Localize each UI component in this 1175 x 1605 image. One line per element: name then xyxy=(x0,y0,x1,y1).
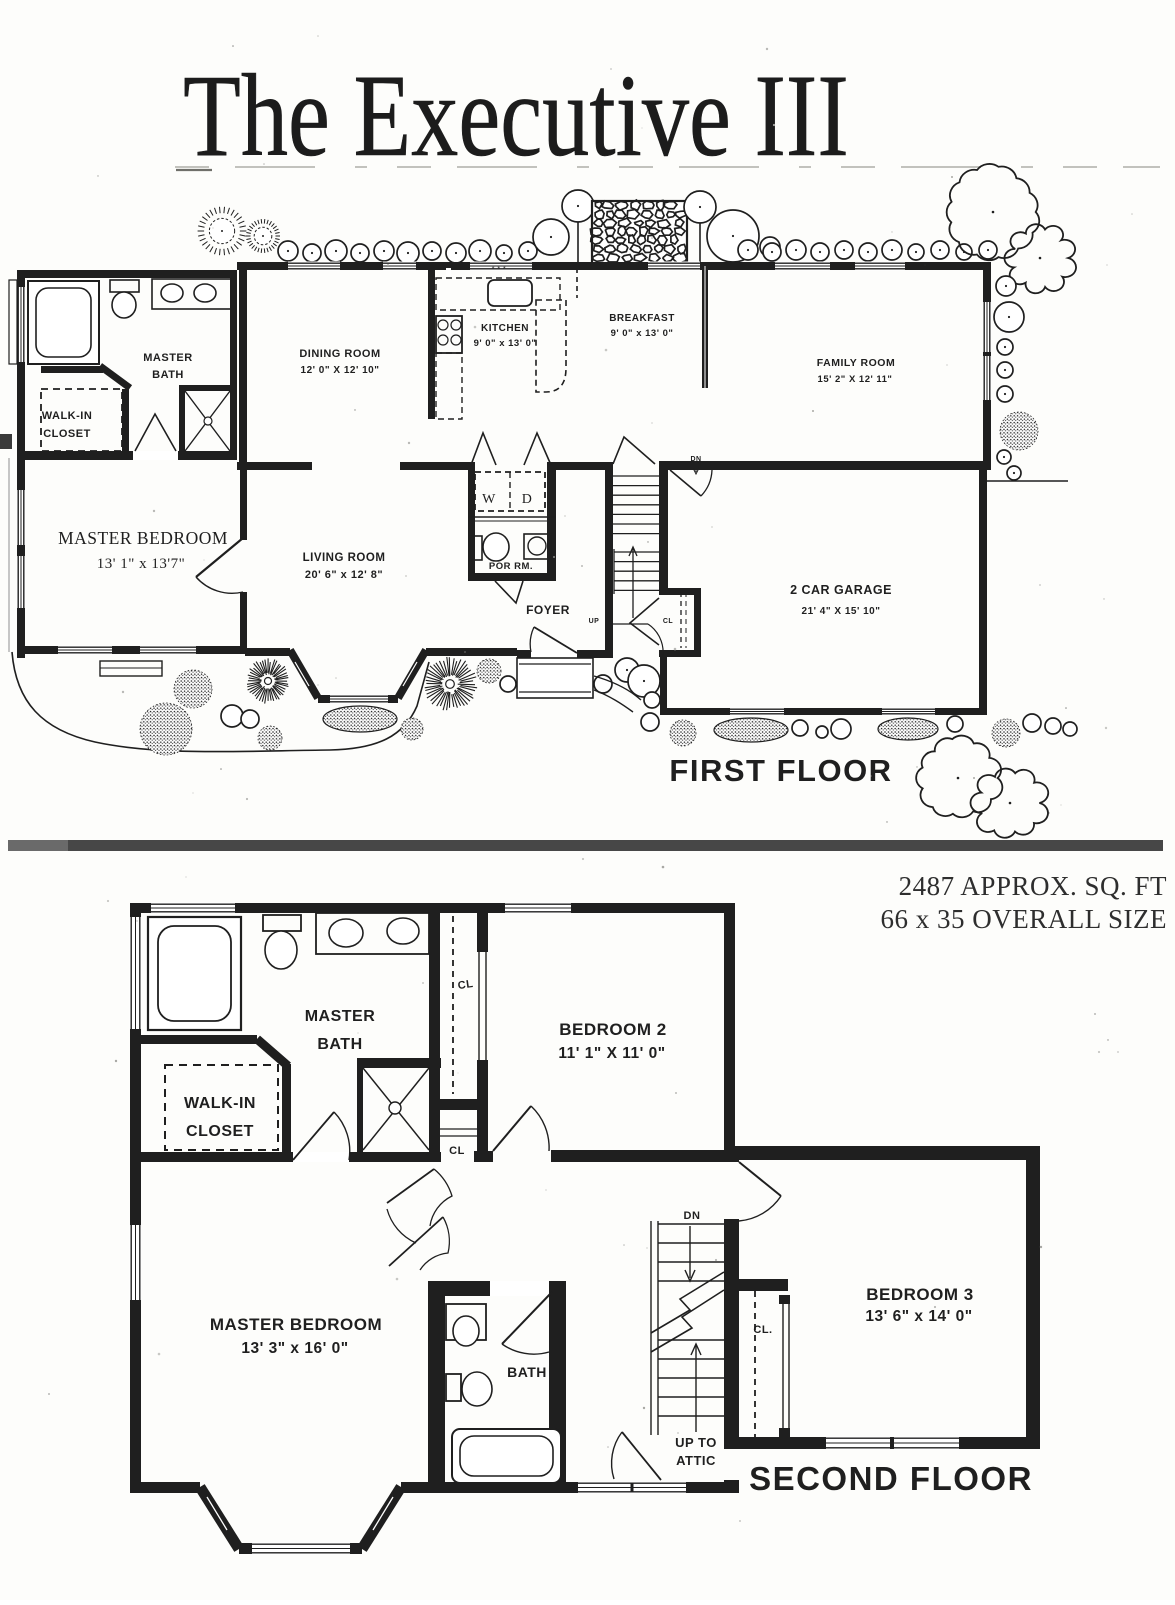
svg-text:BATH: BATH xyxy=(152,369,184,381)
svg-text:DN: DN xyxy=(684,1210,701,1222)
svg-text:WALK-IN: WALK-IN xyxy=(184,1095,256,1112)
svg-text:9' 0" x 13' 0": 9' 0" x 13' 0" xyxy=(474,338,537,349)
svg-text:MASTER BEDROOM: MASTER BEDROOM xyxy=(58,528,228,548)
svg-text:FIRST FLOOR: FIRST FLOOR xyxy=(669,753,892,788)
svg-text:BREAKFAST: BREAKFAST xyxy=(609,313,675,324)
svg-text:15' 2" X 12' 11": 15' 2" X 12' 11" xyxy=(818,374,893,385)
svg-text:CL.: CL. xyxy=(753,1324,772,1336)
svg-text:MASTER: MASTER xyxy=(305,1008,376,1025)
svg-text:D: D xyxy=(522,492,533,507)
svg-text:ATTIC: ATTIC xyxy=(676,1453,716,1468)
svg-text:20' 6" x 12' 8": 20' 6" x 12' 8" xyxy=(305,569,383,581)
svg-text:CLOSET: CLOSET xyxy=(43,428,91,440)
svg-text:POR RM.: POR RM. xyxy=(489,561,533,572)
svg-text:FOYER: FOYER xyxy=(526,603,570,617)
svg-text:13' 6" x 14' 0": 13' 6" x 14' 0" xyxy=(865,1308,972,1325)
svg-text:* * *: * * * xyxy=(492,266,507,273)
svg-text:BATH: BATH xyxy=(507,1364,547,1380)
svg-text:UP TO: UP TO xyxy=(675,1435,717,1450)
svg-text:13' 1" x 13'7": 13' 1" x 13'7" xyxy=(97,556,185,572)
svg-text:WALK-IN: WALK-IN xyxy=(42,410,93,422)
svg-text:66 x 35 OVERALL SIZE: 66 x 35 OVERALL SIZE xyxy=(881,904,1167,934)
svg-text:9' 0" x 13' 0": 9' 0" x 13' 0" xyxy=(611,328,674,339)
svg-text:The Executive III: The Executive III xyxy=(183,51,849,181)
svg-text:KITCHEN: KITCHEN xyxy=(481,323,529,334)
svg-text:FAMILY ROOM: FAMILY ROOM xyxy=(817,357,895,369)
svg-text:2 CAR GARAGE: 2 CAR GARAGE xyxy=(790,583,892,597)
svg-text:11' 1" X 11' 0": 11' 1" X 11' 0" xyxy=(558,1045,665,1062)
svg-text:21' 4" X 15' 10": 21' 4" X 15' 10" xyxy=(802,606,881,617)
svg-text:BEDROOM 2: BEDROOM 2 xyxy=(559,1020,666,1039)
svg-text:12' 0" X 12' 10": 12' 0" X 12' 10" xyxy=(301,365,380,376)
svg-text:CL: CL xyxy=(663,618,674,625)
svg-text:MASTER BEDROOM: MASTER BEDROOM xyxy=(210,1315,382,1334)
svg-text:UP: UP xyxy=(589,618,600,625)
svg-text:LIVING ROOM: LIVING ROOM xyxy=(303,552,386,564)
svg-text:W: W xyxy=(482,492,496,507)
svg-text:SECOND FLOOR: SECOND FLOOR xyxy=(749,1460,1033,1497)
svg-text:MASTER: MASTER xyxy=(143,352,192,364)
svg-text:CLOSET: CLOSET xyxy=(186,1123,254,1140)
svg-text:CL: CL xyxy=(449,1145,465,1157)
svg-text:BEDROOM 3: BEDROOM 3 xyxy=(866,1285,973,1304)
svg-text:CL: CL xyxy=(457,978,474,992)
svg-text:2487 APPROX. SQ. FT: 2487 APPROX. SQ. FT xyxy=(899,871,1167,901)
svg-text:BATH: BATH xyxy=(317,1036,362,1053)
svg-text:DN: DN xyxy=(690,456,701,463)
svg-text:13' 3" x 16' 0": 13' 3" x 16' 0" xyxy=(241,1340,348,1357)
svg-text:DINING ROOM: DINING ROOM xyxy=(299,348,380,360)
